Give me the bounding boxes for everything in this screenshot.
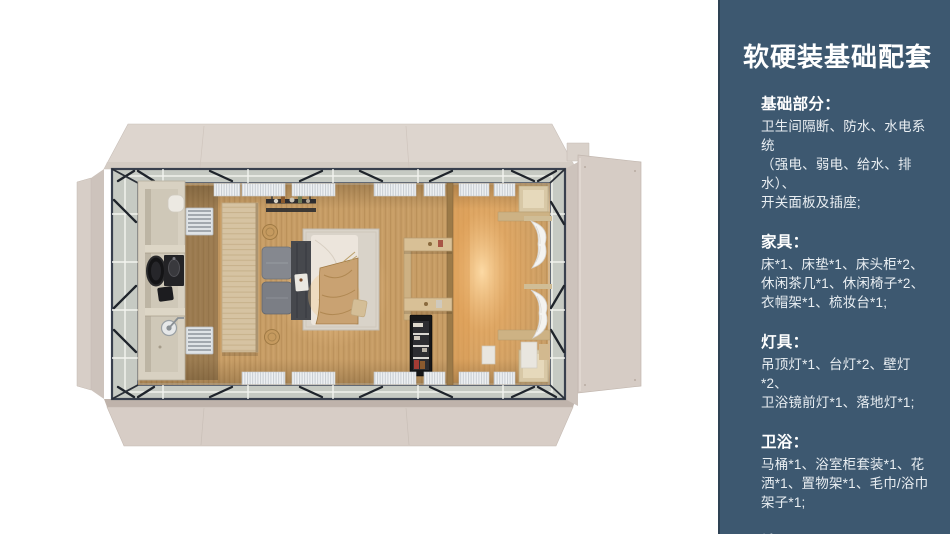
page: 软硬装基础配套 基础部分： 卫生间隔断、防水、水电系统 （强电、弱电、给水、排水… — [0, 0, 950, 534]
white-box — [482, 346, 495, 364]
spec-panel: 软硬装基础配套 基础部分： 卫生间隔断、防水、水电系统 （强电、弱电、给水、排水… — [718, 0, 950, 534]
blind — [292, 372, 335, 385]
spec-section-furniture: 家具： 床*1、床垫*1、床头柜*2、 休闲茶几*1、休闲椅子*2、 衣帽架*1… — [761, 233, 936, 312]
blind — [459, 372, 489, 385]
blind — [214, 184, 240, 197]
section-heading: 家具： — [761, 233, 936, 252]
black-display-cabinet — [410, 315, 432, 376]
section-body: 吊顶灯*1、台灯*2、壁灯*2、 卫浴镜前灯*1、落地灯*1; — [761, 355, 936, 412]
section-heading: 基础部分： — [761, 95, 936, 114]
spec-section-bathroom: 卫浴： 马桶*1、浴室柜套装*1、花 洒*1、置物架*1、毛巾/浴巾 架子*1; — [761, 433, 936, 512]
blind — [494, 184, 515, 197]
section-heading: 灯具： — [761, 333, 936, 352]
blind — [292, 184, 335, 197]
blind — [424, 184, 445, 197]
section-body: 卫生间隔断、防水、水电系统 （强电、弱电、给水、排水）、 开关面板及插座; — [761, 117, 936, 212]
spec-section-basics: 基础部分： 卫生间隔断、防水、水电系统 （强电、弱电、给水、排水）、 开关面板及… — [761, 95, 936, 212]
towel-radiator — [186, 208, 213, 235]
blind — [242, 372, 285, 385]
blind — [242, 184, 285, 197]
section-heading: 卫浴： — [761, 433, 936, 452]
rattan-pouf — [265, 330, 280, 345]
wardrobe — [222, 203, 258, 356]
spec-section-lighting: 灯具： 吊顶灯*1、台灯*2、壁灯*2、 卫浴镜前灯*1、落地灯*1; — [761, 333, 936, 412]
curtain-rod — [524, 216, 552, 221]
cushion — [351, 299, 368, 317]
shelf-board — [404, 298, 452, 311]
blind — [424, 372, 445, 385]
section-body: 床*1、床垫*1、床头柜*2、 休闲茶几*1、休闲椅子*2、 衣帽架*1、梳妆台… — [761, 255, 936, 312]
floor-plan-render — [0, 0, 718, 534]
bathroom — [138, 181, 185, 380]
towel-roll — [168, 195, 184, 212]
blind — [459, 184, 489, 197]
bed-tray — [294, 273, 308, 291]
blind — [494, 372, 515, 385]
curtain-rod — [524, 284, 552, 289]
panel-title: 软硬装基础配套 — [743, 40, 936, 74]
vanity-stool — [157, 286, 174, 302]
divider-wall — [447, 183, 453, 385]
section-body: 马桶*1、浴室柜套装*1、花 洒*1、置物架*1、毛巾/浴巾 架子*1; — [761, 455, 936, 512]
rattan-pouf — [263, 225, 278, 240]
sink — [169, 260, 180, 277]
shelf-board — [404, 238, 452, 251]
towel-radiator — [186, 327, 213, 354]
blind — [374, 184, 416, 197]
blind — [374, 372, 416, 385]
white-box — [521, 342, 537, 368]
right-wing-panel — [578, 155, 641, 393]
